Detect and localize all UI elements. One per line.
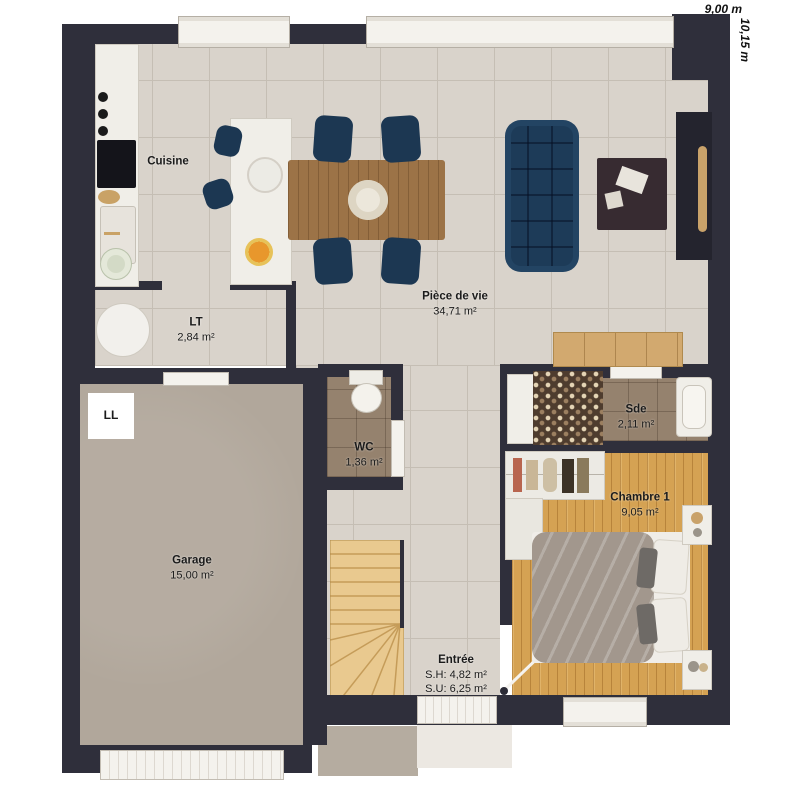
wall-wc-right-upper (391, 364, 403, 420)
water-heater (96, 303, 150, 357)
room-area: 34,71 m² (422, 304, 488, 318)
room-area-sh: S.H: 4,82 m² (425, 668, 487, 682)
door-hinge (500, 687, 508, 695)
dining-chair (380, 115, 421, 164)
island-sink (247, 157, 283, 193)
room-label-cuisine: Cuisine (147, 155, 189, 170)
dining-chair (312, 115, 353, 164)
dimension-depth-label: 10,15 m (738, 18, 752, 62)
clothes (577, 458, 589, 493)
wardrobe (505, 451, 605, 500)
stairs (330, 540, 404, 700)
cooktop (97, 140, 136, 188)
room-label-piece-de-vie: Pièce de vie 34,71 m² (422, 289, 488, 318)
fruit-bowl (245, 238, 273, 266)
window-top-main (366, 16, 674, 48)
room-label-chambre1: Chambre 1 9,05 m² (610, 490, 669, 519)
room-name: Chambre 1 (610, 490, 669, 505)
room-label-sde: Sde 2,11 m² (618, 402, 654, 431)
door-wc (391, 420, 405, 477)
stair-railing (400, 540, 404, 628)
plate (100, 248, 132, 280)
wall-wc-bottom (318, 477, 403, 490)
room-area: 15,00 m² (170, 568, 213, 582)
room-label-entree: Entrée S.H: 4,82 m² S.U: 6,25 m² (425, 653, 487, 697)
room-name: Cuisine (147, 155, 189, 170)
nightstand (682, 650, 712, 690)
door-garage (163, 372, 229, 386)
room-area: 2,11 m² (618, 417, 654, 431)
stove-knob (98, 109, 108, 119)
clothes (513, 458, 522, 492)
toilet-bowl (351, 383, 382, 413)
room-name: Entrée (425, 653, 487, 668)
room-area-su: S.U: 6,25 m² (425, 682, 487, 696)
wall-lt-right (286, 281, 296, 368)
clothes (526, 460, 538, 490)
wall-left (62, 24, 95, 370)
washing-machine: LL (88, 393, 134, 439)
wall-garage-right (303, 368, 327, 745)
dimension-width-label: 9,00 m (660, 2, 742, 16)
clothes (543, 458, 557, 492)
wall-bottom (310, 695, 730, 725)
sink-basin (682, 385, 706, 429)
door-sde (610, 365, 662, 379)
nightstand (682, 505, 712, 545)
room-label-wc: WC 1,36 m² (345, 440, 382, 469)
stove-knob (98, 126, 108, 136)
decor (688, 661, 699, 672)
exterior-pad (318, 726, 418, 776)
room-name: WC (345, 440, 382, 455)
room-name: LT (177, 315, 214, 330)
room-name: Sde (618, 402, 654, 417)
plant (98, 190, 120, 204)
shower-tray (507, 374, 535, 444)
sideboard (553, 332, 683, 367)
floor-plan: LL Cuisine Pièce de vie 34,71 m² LT 2,8 (0, 0, 800, 800)
dining-chair (380, 237, 421, 286)
room-label-lt: LT 2,84 m² (177, 315, 214, 344)
room-area: 1,36 m² (345, 455, 382, 469)
duvet (532, 532, 654, 663)
shower-mosaic (533, 371, 603, 445)
magazine (605, 191, 624, 210)
decor (693, 528, 702, 537)
wall-garage-left (62, 370, 80, 773)
room-name: Pièce de vie (422, 289, 488, 304)
table-centerpiece (348, 180, 388, 220)
tv-screen (698, 146, 707, 232)
room-name: Garage (170, 553, 213, 568)
room-area: 2,84 m² (177, 330, 214, 344)
door-garage-main (100, 750, 284, 780)
washing-machine-label: LL (104, 408, 119, 424)
window-top-left (178, 16, 290, 48)
stove-knob (98, 92, 108, 102)
door-front (417, 696, 497, 724)
wall-corner-top-right (672, 14, 730, 80)
room-label-garage: Garage 15,00 m² (170, 553, 213, 582)
room-area: 9,05 m² (610, 505, 669, 519)
lamp (699, 663, 708, 672)
sofa (505, 120, 579, 272)
window-bedroom (563, 697, 647, 727)
entry-step (417, 722, 512, 768)
dining-chair (312, 237, 353, 286)
lamp (691, 512, 703, 524)
faucet (104, 232, 120, 235)
clothes (562, 459, 574, 493)
